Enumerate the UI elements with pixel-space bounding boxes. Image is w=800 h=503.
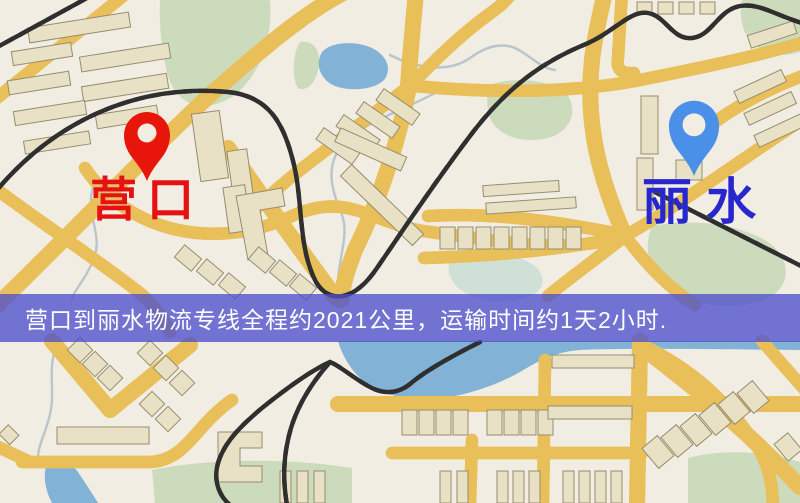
map-canvas[interactable] [0,0,800,503]
destination-label: 丽水 [642,177,770,227]
route-info-text: 营口到丽水物流专线全程约2021公里，运输时间约1天2小时. [0,301,667,335]
map-viewport[interactable]: 营口 丽水 营口到丽水物流专线全程约2021公里，运输时间约1天2小时. [0,0,800,503]
route-info-banner: 营口到丽水物流专线全程约2021公里，运输时间约1天2小时. [0,294,800,342]
origin-label: 营口 [90,176,204,223]
